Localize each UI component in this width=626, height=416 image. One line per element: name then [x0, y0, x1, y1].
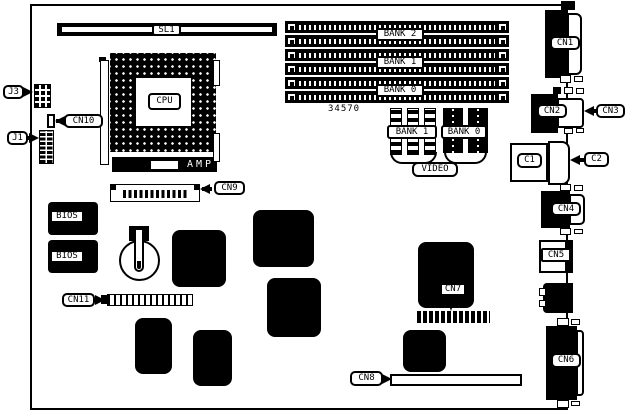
simm-clip-icon — [287, 23, 296, 31]
cn3-pointer-icon — [584, 106, 594, 116]
j1-connector — [39, 130, 54, 164]
cn6-label-text: CN6 — [558, 356, 574, 365]
cn11-label: CN11 — [62, 293, 95, 307]
cn3-label: CN3 — [596, 104, 625, 118]
cn9-pins-pattern — [123, 190, 189, 198]
cn6-label: CN6 — [551, 353, 581, 368]
battery-clip — [134, 228, 144, 272]
bios2-label-text: BIOS — [56, 252, 78, 261]
audio-jack-hole — [539, 300, 546, 307]
cn11-pointer-icon — [95, 295, 105, 305]
cpu-socket-notch-bottom — [213, 133, 220, 162]
bank2-label: BANK 2 — [376, 28, 424, 41]
simm-clip-icon — [498, 65, 507, 73]
cn7-label: CN7 — [440, 283, 466, 296]
cpu-slide-bar — [100, 60, 109, 165]
cn1-mount-tab — [560, 75, 571, 83]
cn9-key-left — [111, 185, 116, 190]
cn6-mount-tab — [571, 319, 580, 325]
cn4-label: CN4 — [551, 202, 581, 216]
simm-clip-icon — [498, 51, 507, 59]
amp-brand-text: AMP — [187, 159, 214, 170]
simm-clip-icon — [498, 93, 507, 101]
part-number: 34570 — [328, 104, 360, 114]
simm-clip-icon — [287, 79, 296, 87]
cn4-mount-tab — [560, 228, 571, 235]
simm-clip-icon — [287, 37, 296, 45]
cn2-mount-tab — [576, 128, 584, 133]
bank0-label-text: BANK 0 — [384, 86, 417, 95]
j3-pointer-icon — [23, 87, 33, 97]
cn2-mount-tab — [576, 88, 584, 94]
j3-connector — [34, 84, 51, 108]
cn1-label: CN1 — [550, 36, 580, 50]
cn11-connector — [107, 294, 193, 306]
audio-jack-block — [543, 283, 573, 313]
video-label-text: VIDEO — [421, 165, 448, 174]
ic-chip-b — [253, 210, 314, 267]
cn4-label-text: CN4 — [558, 205, 574, 214]
battery-clip-tip — [137, 261, 141, 269]
sl1-label: SL1 — [152, 24, 181, 36]
c2-label: C2 — [584, 152, 609, 167]
cn6-mount-tab — [557, 400, 569, 408]
video-bank0-label: BANK 0 — [441, 125, 487, 139]
cn5-label: CN5 — [541, 248, 571, 262]
cn9-pointer-icon — [200, 184, 210, 194]
amp-bar-window — [151, 161, 178, 169]
ic-chip-c — [267, 278, 321, 337]
bios2-label: BIOS — [50, 250, 84, 263]
bios1-label-text: BIOS — [56, 212, 78, 221]
cn9-label: CN9 — [214, 181, 245, 195]
j3-label: J3 — [3, 85, 24, 99]
cn10-label-text: CN10 — [73, 117, 95, 126]
cn3-label-text: CN3 — [602, 107, 618, 116]
simm-clip-icon — [498, 23, 507, 31]
cn9-connector — [110, 184, 200, 202]
cn1-label-text: CN1 — [557, 39, 573, 48]
video-bank1-label: BANK 1 — [387, 125, 437, 139]
ic-chip-a — [172, 230, 226, 287]
cn7-connector — [415, 311, 490, 323]
cn9-key-right — [194, 185, 199, 190]
cpu-label: CPU — [148, 93, 181, 110]
cn7-pointer-icon — [446, 296, 456, 311]
c2-pointer-icon — [570, 155, 580, 165]
cn7-label-text: CN7 — [445, 285, 461, 294]
audio-jack-hole — [539, 288, 546, 296]
cn9-label-text: CN9 — [221, 184, 237, 193]
j3-label-text: J3 — [8, 88, 19, 97]
ic-chip-g — [403, 330, 446, 372]
video-label: VIDEO — [412, 162, 458, 177]
c1-label-text: C1 — [524, 156, 535, 165]
cn10-connector — [47, 114, 55, 128]
j1-label: J1 — [7, 131, 28, 145]
cn2-label: CN2 — [537, 104, 567, 118]
sl1-label-text: SL1 — [158, 26, 174, 35]
simm-clip-icon — [287, 51, 296, 59]
cn5-label-text: CN5 — [548, 251, 564, 260]
cpu-label-text: CPU — [156, 97, 172, 106]
simm-clip-icon — [287, 93, 296, 101]
j1-label-text: J1 — [12, 134, 23, 143]
video-bank0-label-text: BANK 0 — [448, 128, 481, 137]
simm-clip-icon — [498, 79, 507, 87]
cn8-connector — [390, 374, 522, 386]
ic-chip-d — [135, 318, 172, 374]
cn11-label-text: CN11 — [68, 296, 90, 305]
cn4-mount-tab — [574, 229, 583, 234]
bank1-label: BANK 1 — [376, 56, 424, 69]
simm-clip-icon — [287, 65, 296, 73]
c2-label-text: C2 — [591, 155, 602, 164]
bank0-label: BANK 0 — [376, 84, 424, 97]
motherboard-diagram: SL1 BANK 2 BANK 1 BANK 0 34570 — [0, 0, 626, 416]
cn6-mount-tab — [557, 318, 569, 326]
j1-pointer-icon — [29, 133, 39, 143]
cn4-mount-tab — [560, 184, 571, 191]
amp-socket-bar: AMP — [112, 157, 217, 172]
simm-clip-icon — [498, 37, 507, 45]
c1-port — [548, 141, 570, 185]
cn8-label-text: CN8 — [358, 374, 374, 383]
cn2-label-text: CN2 — [544, 107, 560, 116]
bank2-label-text: BANK 2 — [384, 30, 417, 39]
bios1-label: BIOS — [50, 210, 84, 223]
cn1-mount-tab — [574, 76, 583, 82]
cn1-board-tab — [561, 1, 575, 10]
bank1-label-text: BANK 1 — [384, 58, 417, 67]
cn8-label: CN8 — [350, 371, 383, 386]
cn2-mount-tab — [564, 128, 573, 134]
cn8-pointer-icon — [382, 374, 392, 384]
cn2-top-key — [553, 87, 561, 94]
ic-chip-e — [193, 330, 232, 386]
cpu-socket-notch-top — [213, 60, 220, 86]
video-bank1-label-text: BANK 1 — [396, 128, 429, 137]
cn10-label: CN10 — [64, 114, 103, 128]
cn4-mount-tab — [574, 185, 583, 191]
cn2-mount-tab — [564, 87, 573, 94]
cn6-mount-tab — [571, 401, 580, 406]
c1-label: C1 — [517, 153, 542, 168]
